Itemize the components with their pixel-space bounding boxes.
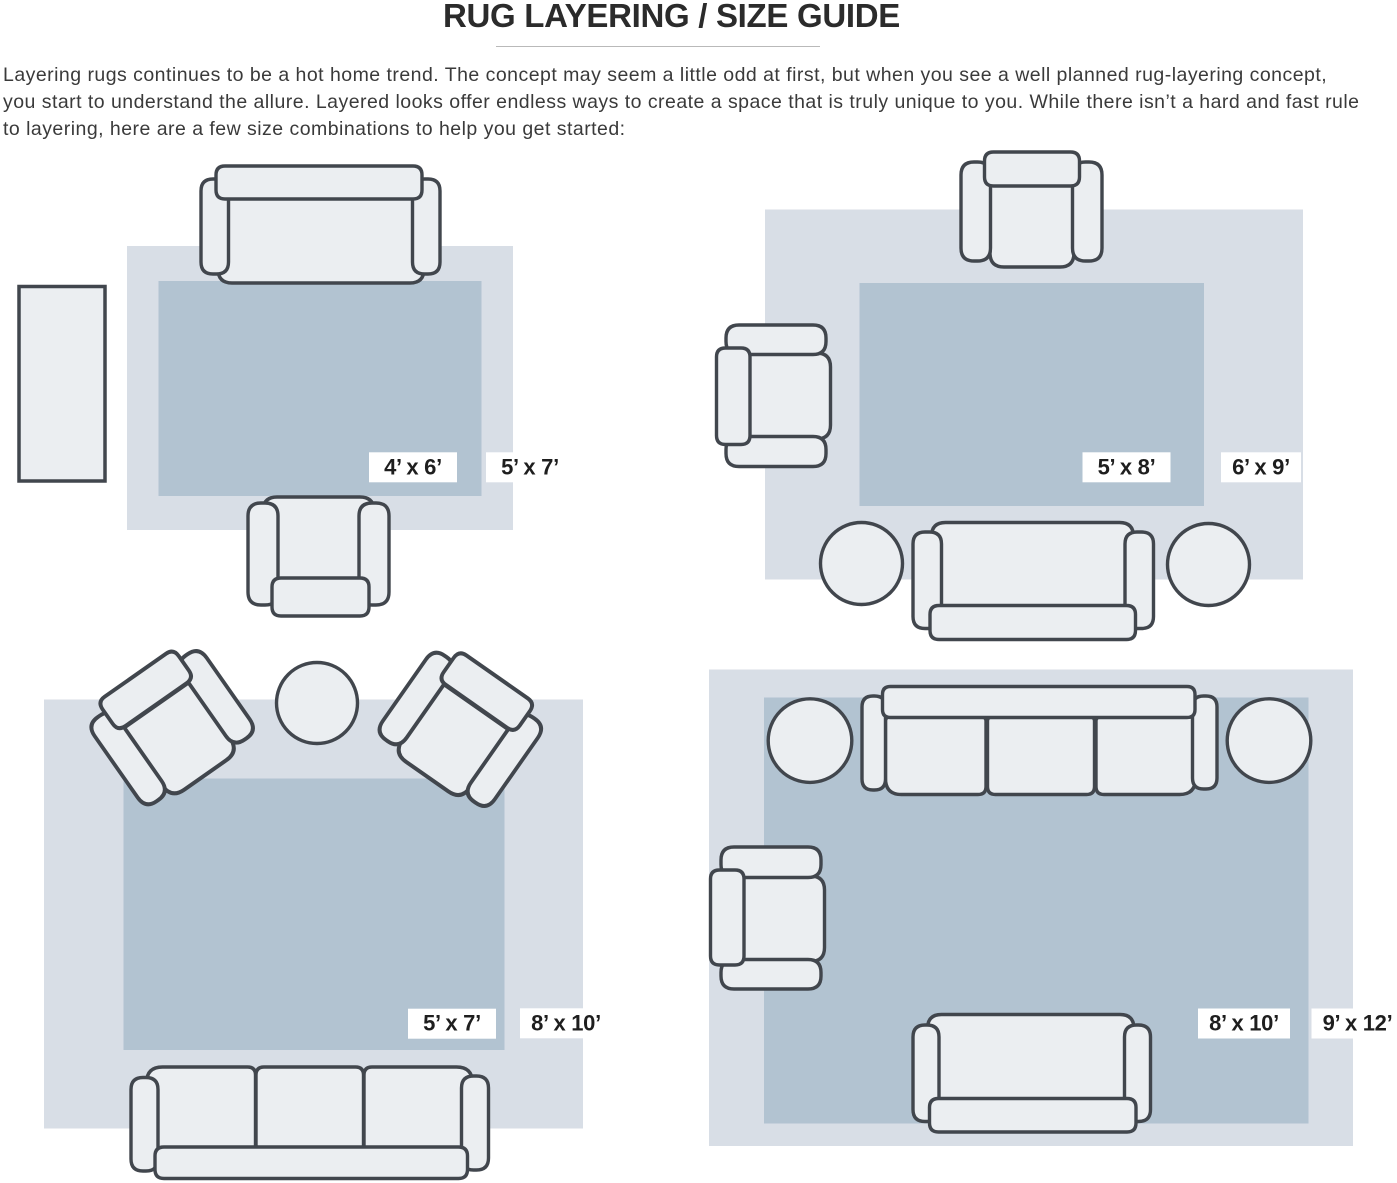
svg-text:9’ x 12’: 9’ x 12’ bbox=[1323, 1011, 1393, 1036]
svg-text:6’ x 9’: 6’ x 9’ bbox=[1232, 454, 1290, 479]
svg-text:5’ x 7’: 5’ x 7’ bbox=[423, 1011, 481, 1036]
svg-text:5’ x 7’: 5’ x 7’ bbox=[501, 454, 559, 479]
svg-text:5’ x 8’: 5’ x 8’ bbox=[1098, 454, 1156, 479]
svg-text:8’ x 10’: 8’ x 10’ bbox=[1209, 1011, 1279, 1036]
svg-text:8’ x 10’: 8’ x 10’ bbox=[531, 1010, 601, 1035]
svg-text:4’ x 6’: 4’ x 6’ bbox=[384, 454, 442, 479]
